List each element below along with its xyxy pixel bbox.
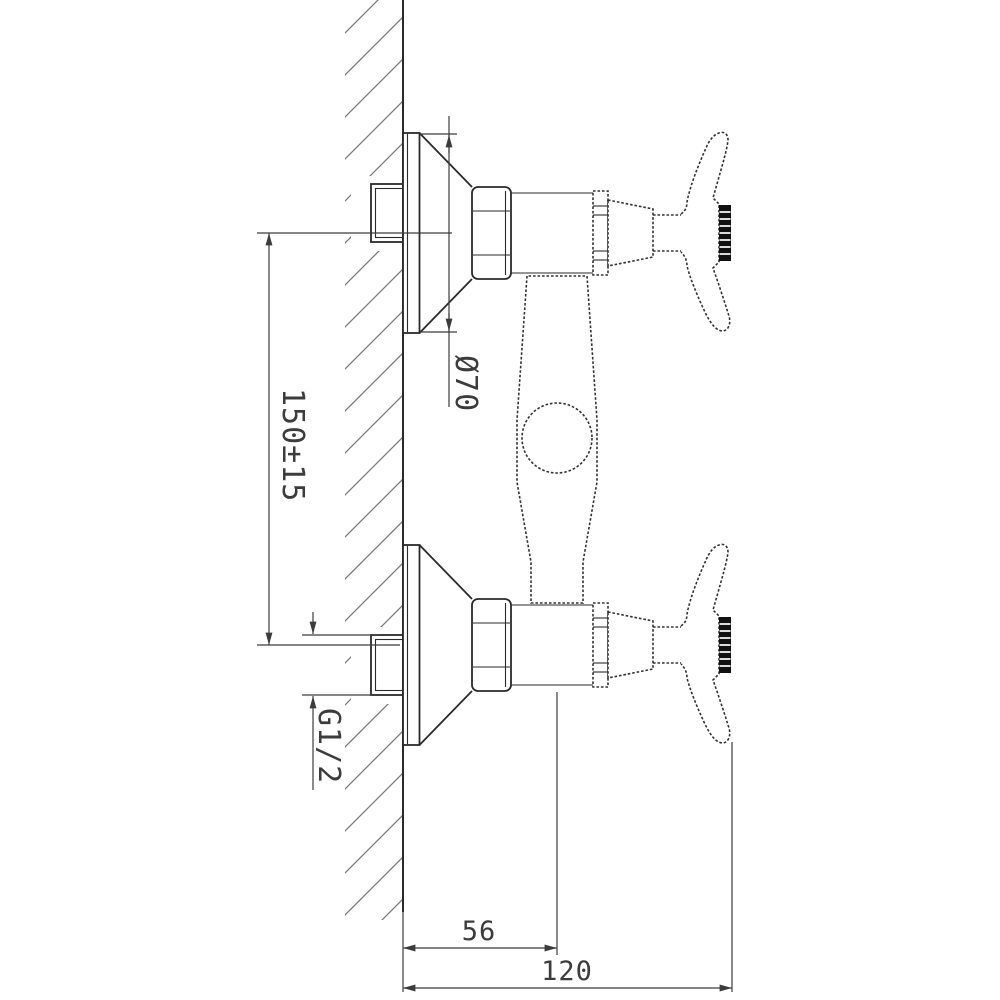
dimension-label-d70: Ø70 — [448, 355, 483, 412]
pipe-stub-bottom — [371, 635, 403, 695]
dimension-body-offset: 56 — [403, 692, 557, 955]
drawing-canvas: 150±15 Ø70 G1/2 56 120 — [0, 0, 1000, 1000]
mixer-body — [517, 276, 597, 603]
dimension-overall-depth: 120 — [403, 742, 732, 992]
dimension-label-g12: G1/2 — [311, 708, 346, 784]
dimension-label-56: 56 — [462, 916, 497, 947]
wall-hatch — [345, 0, 403, 920]
faucet-technical-drawing: 150±15 Ø70 G1/2 56 120 — [0, 0, 1000, 1000]
dimension-label-150: 150±15 — [275, 388, 310, 502]
dimension-label-120: 120 — [541, 956, 593, 987]
